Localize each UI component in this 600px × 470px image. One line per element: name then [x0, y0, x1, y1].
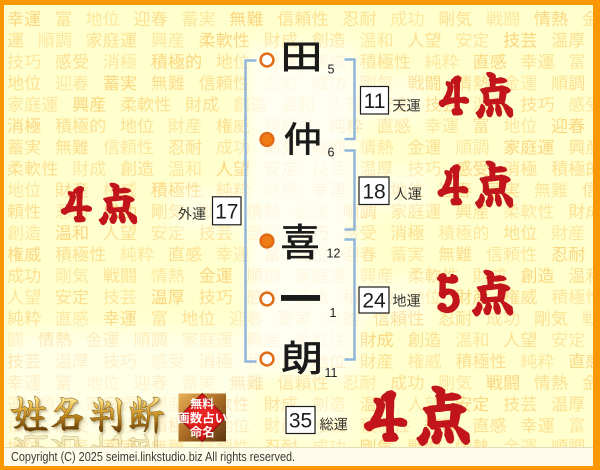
svg-text:5: 5 — [328, 63, 335, 77]
svg-text:12: 12 — [327, 247, 341, 261]
svg-text:17: 17 — [215, 200, 238, 223]
svg-text:1: 1 — [330, 306, 337, 320]
svg-text:35: 35 — [289, 410, 312, 433]
svg-text:11: 11 — [325, 366, 338, 380]
svg-text:24: 24 — [362, 290, 386, 313]
svg-text:11: 11 — [364, 90, 386, 113]
svg-text:6: 6 — [328, 146, 335, 160]
svg-text:18: 18 — [362, 180, 385, 203]
